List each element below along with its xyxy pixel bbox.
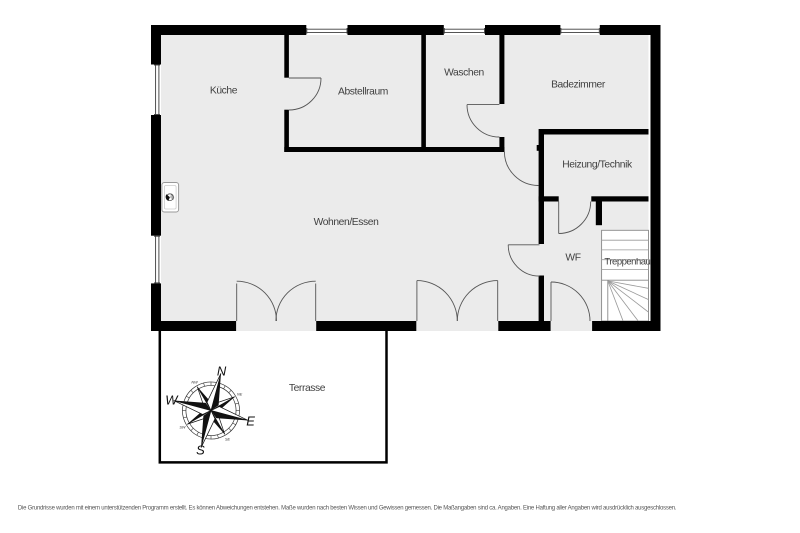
svg-text:NW: NW	[191, 380, 198, 384]
svg-text:N: N	[217, 363, 227, 378]
svg-text:Waschen: Waschen	[444, 68, 484, 79]
svg-text:Badezimmer: Badezimmer	[551, 80, 606, 91]
svg-text:Die Grundrisse wurden mit eine: Die Grundrisse wurden mit einem unterstü…	[18, 506, 677, 512]
svg-text:W: W	[165, 392, 179, 407]
svg-text:Terrasse: Terrasse	[289, 383, 326, 394]
svg-text:Wohnen/Essen: Wohnen/Essen	[314, 217, 380, 228]
svg-text:SW: SW	[179, 426, 186, 430]
svg-text:S: S	[196, 443, 205, 458]
svg-text:Küche: Küche	[210, 86, 238, 97]
svg-text:NE: NE	[237, 393, 243, 397]
svg-text:Heizung/Technik: Heizung/Technik	[562, 160, 633, 171]
svg-text:WF: WF	[565, 253, 580, 264]
svg-text:E: E	[246, 414, 255, 429]
svg-text:Treppenhaus: Treppenhaus	[604, 256, 655, 267]
svg-text:SE: SE	[225, 438, 231, 442]
svg-text:Abstellraum: Abstellraum	[338, 87, 388, 98]
